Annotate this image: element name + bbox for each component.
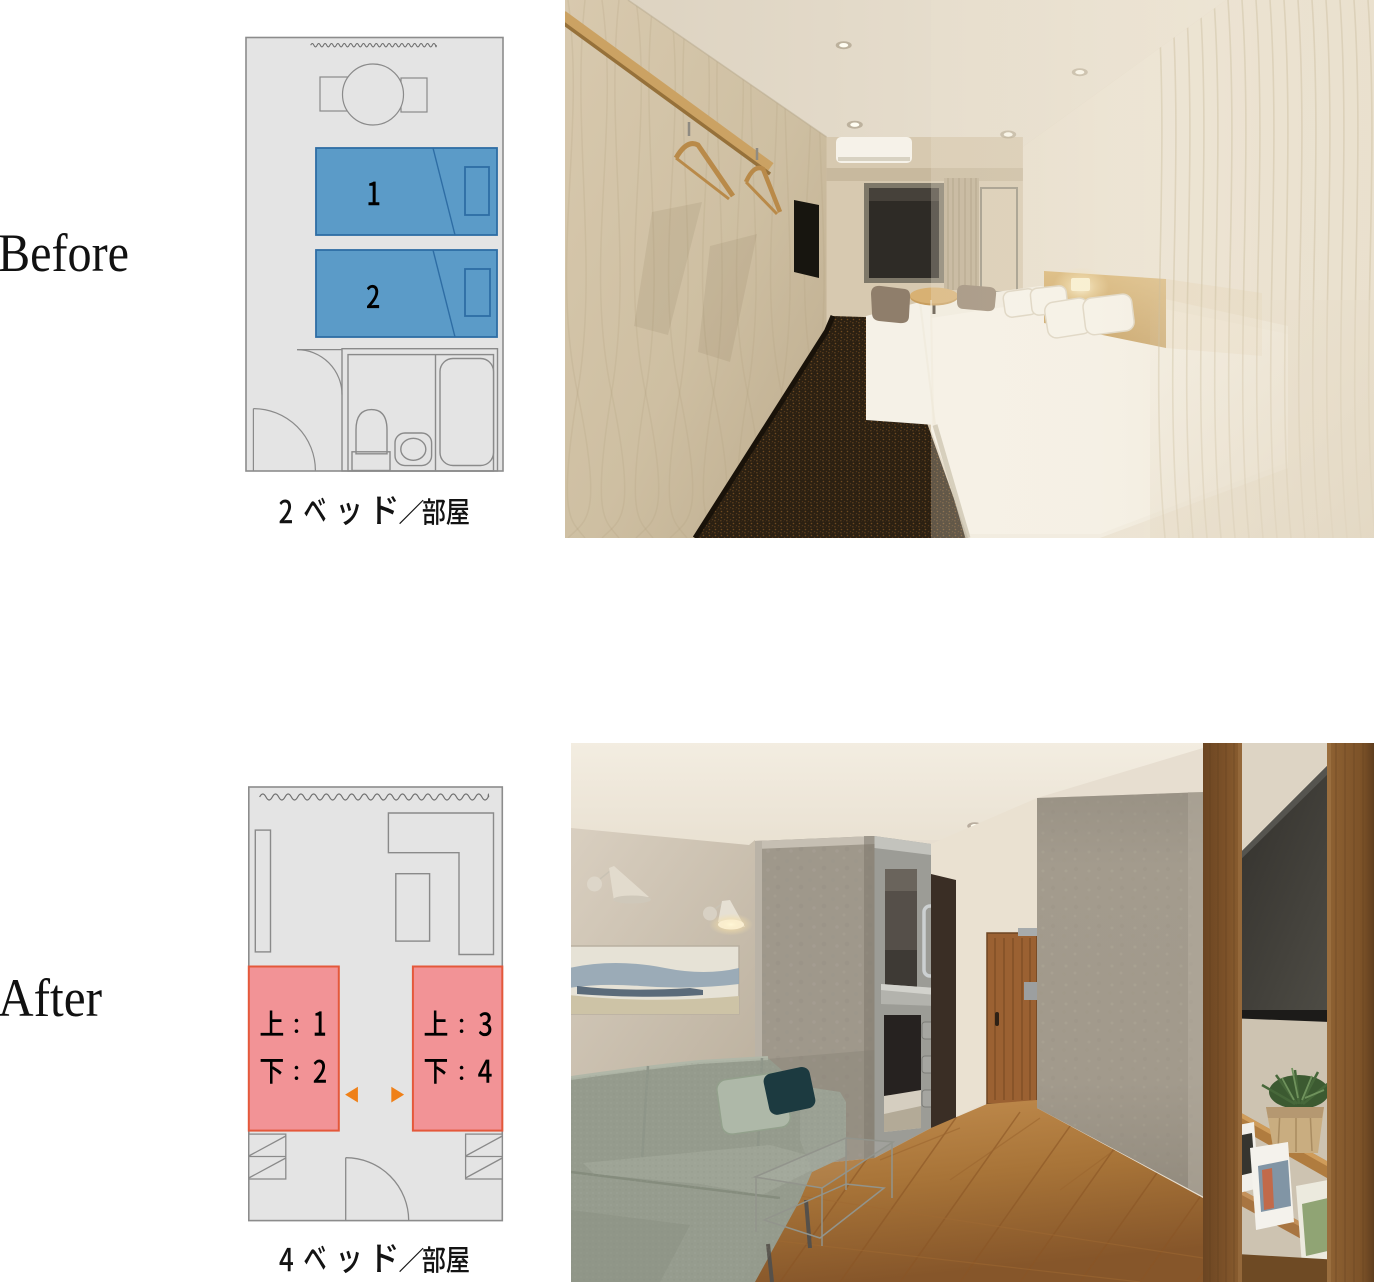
svg-text:Before: Before: [0, 223, 129, 283]
svg-text:After: After: [0, 968, 102, 1028]
